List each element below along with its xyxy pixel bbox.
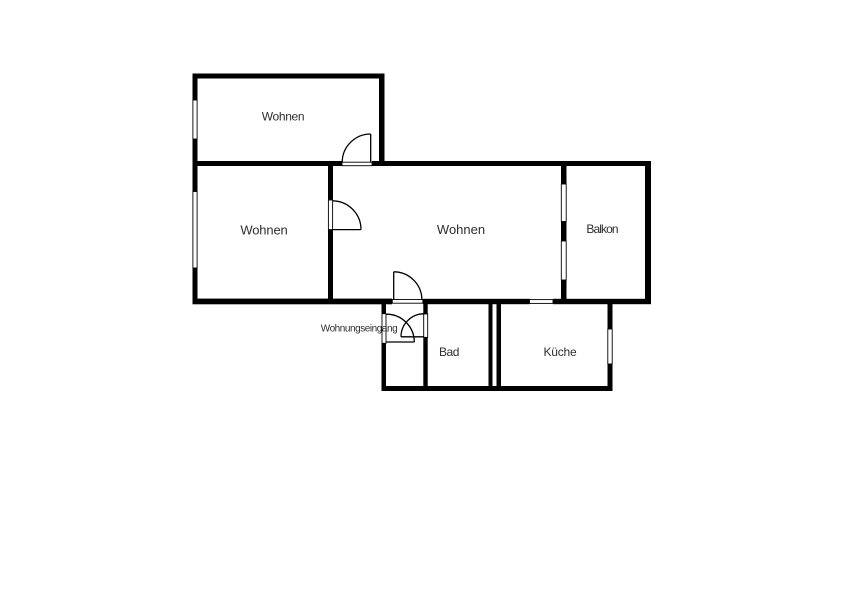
- svg-text:Wohnen: Wohnen: [240, 223, 287, 238]
- svg-text:Balkon: Balkon: [586, 222, 618, 236]
- svg-text:Wohnen: Wohnen: [437, 222, 485, 237]
- svg-text:Wohnen: Wohnen: [262, 110, 304, 124]
- svg-text:Wohnungseingang: Wohnungseingang: [321, 323, 397, 334]
- svg-text:Bad: Bad: [439, 345, 459, 359]
- svg-text:Küche: Küche: [543, 345, 577, 359]
